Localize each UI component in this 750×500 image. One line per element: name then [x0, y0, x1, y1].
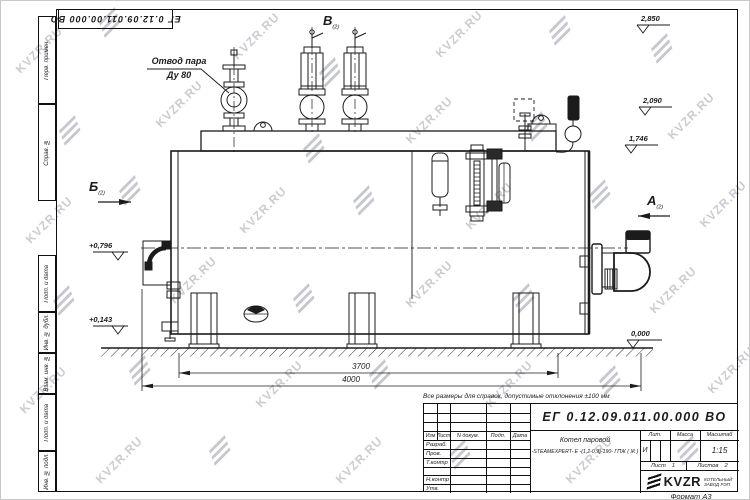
- kvzr-logo-subtitle: КОТЕЛЬНЫЙ ЗАВОД РЭП: [704, 477, 732, 487]
- dimension-4000: 4000: [321, 375, 381, 384]
- view-marker-letter: Б: [89, 179, 98, 194]
- burner-unit: [580, 231, 650, 314]
- tb-sheets-label: Листов: [697, 463, 718, 469]
- lifting-lug-left: [254, 122, 272, 131]
- phantom-outline: [514, 99, 534, 121]
- pressure-gauge: [556, 96, 581, 152]
- kvzr-logo-sub-line2: ЗАВОД РЭП: [704, 482, 732, 487]
- tb-mass-label: Масса: [670, 430, 700, 440]
- view-marker-ref: (2): [332, 25, 339, 31]
- tb-sheet-label: Лист: [651, 463, 666, 469]
- front-fittings: [143, 241, 180, 341]
- view-marker-ref: (2): [656, 205, 663, 211]
- dimension-3700: 3700: [331, 362, 391, 371]
- title-block: Изм Лист N докум. Подп. Дата Разраб. Про…: [423, 403, 738, 492]
- elevation-2090: 2,090: [643, 96, 662, 105]
- tb-col-data: Дата: [510, 431, 530, 440]
- corner-stamp-number: ЕГ 0.12.09.011.00.000 ВО: [50, 14, 181, 24]
- tb-scale-label: Масштаб: [700, 430, 739, 440]
- tb-row-nkontr: Н.контр: [424, 475, 452, 484]
- drawing-sheet: KVZR.RUKVZR.RUKVZR.RUKVZR.RUKVZR.RUKVZR.…: [0, 0, 750, 500]
- tb-product-name-2: -STEAMEXPERT- Е -(1,2-0,9)-190- ГПЖ ( Ж …: [530, 447, 640, 457]
- view-marker-v: В(2): [323, 13, 339, 31]
- steam-outlet-label-line2: Ду 80: [148, 70, 210, 80]
- tb-col-ndokum: N докум.: [450, 431, 486, 440]
- top-small-valve: [519, 113, 531, 151]
- tb-col-list: Лист: [437, 431, 450, 440]
- view-marker-letter: А: [647, 193, 656, 208]
- ground-line: [101, 348, 653, 357]
- tb-row-tkontr: Т.контр: [424, 458, 452, 467]
- tb-sheet: Лист 1: [640, 461, 686, 470]
- tb-lit-label: Лит.: [640, 430, 670, 440]
- steam-outlet-valve: [221, 47, 247, 153]
- lifting-lug-right: [528, 115, 556, 131]
- tb-sheets: Листов 2: [686, 461, 739, 470]
- support-legs: [189, 293, 541, 348]
- tb-sheet-value: 1: [672, 463, 675, 469]
- tb-row-utv: Утв.: [424, 484, 452, 493]
- kvzr-logo-icon: [646, 473, 661, 490]
- elevation-zero: 0,000: [631, 329, 650, 338]
- steam-outlet-label-line1: Отвод пара: [148, 56, 210, 66]
- tb-scale-value: 1:15: [700, 440, 739, 461]
- elevation-0143: +0,143: [89, 315, 112, 324]
- elevation-2850: 2,850: [641, 14, 660, 23]
- kvzr-logo-text: KVZR: [664, 474, 701, 489]
- elevation-1746: 1,746: [629, 134, 648, 143]
- manhole: [244, 306, 268, 322]
- tb-product-name-1: Котел паровой: [530, 434, 640, 446]
- tb-doc-number: ЕГ 0.12.09.011.00.000 ВО: [530, 404, 739, 430]
- view-marker-a: А(2): [647, 193, 663, 211]
- boiler-shell: [171, 131, 589, 334]
- tb-row-prov: Пров.: [424, 449, 452, 458]
- safety-valve-left: [299, 27, 325, 132]
- tb-sheets-value: 2: [724, 463, 727, 469]
- elevation-0796: +0,796: [89, 241, 112, 250]
- tb-col-izm: Изм: [424, 431, 437, 440]
- tolerance-note: Все размеры для справок, допустимые откл…: [423, 393, 610, 400]
- format-label: Формат А3: [631, 492, 750, 500]
- tb-row-razrab: Разраб.: [424, 440, 452, 449]
- view-marker-ref: (2): [98, 191, 105, 197]
- view-arrows: [98, 199, 670, 219]
- safety-valve-right: [342, 27, 368, 132]
- tb-lit-value: И: [640, 440, 650, 461]
- tb-logo: KVZR КОТЕЛЬНЫЙ ЗАВОД РЭП: [640, 470, 739, 493]
- view-marker-b: Б(2): [89, 179, 105, 197]
- view-marker-letter: В: [323, 13, 332, 28]
- tb-col-podp: Подп.: [486, 431, 510, 440]
- corner-stamp: ЕГ 0.12.09.011.00.000 ВО: [58, 9, 173, 29]
- level-gauge-assembly: [432, 145, 510, 221]
